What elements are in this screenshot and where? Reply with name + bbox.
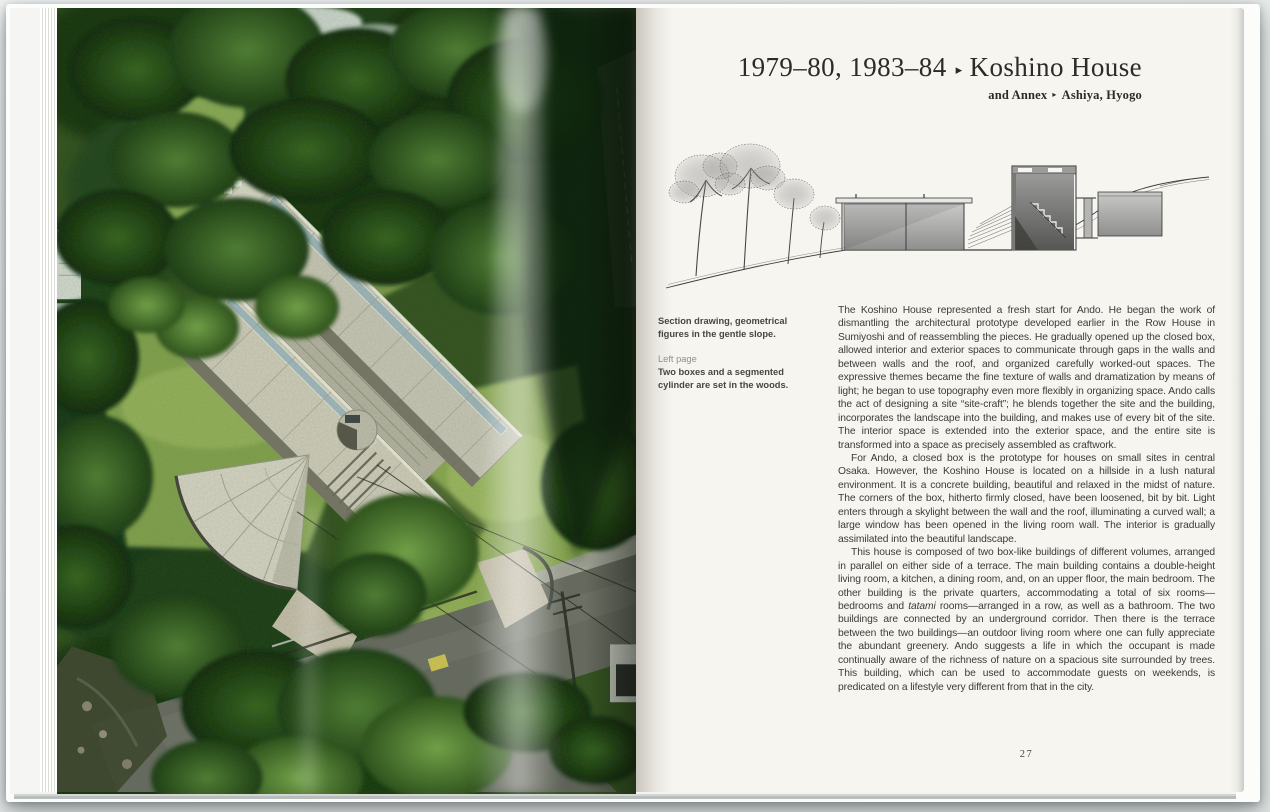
caption-line: Two boxes and a segmented xyxy=(658,366,794,379)
title-separator-icon: ▸ xyxy=(956,63,963,78)
chapter-heading: 1979–80, 1983–84▸Koshino House and Annex… xyxy=(738,52,1142,103)
caption-line: cylinder are set in the woods. xyxy=(658,379,794,392)
page-edge-curl xyxy=(1230,8,1244,792)
sketch-main-building xyxy=(1012,166,1076,250)
sketch-terrace-steps xyxy=(968,206,1012,248)
subtitle-location: Ashiya, Hyogo xyxy=(1062,88,1142,102)
body-text: The Koshino House represented a fresh st… xyxy=(838,304,1215,694)
page-subtitle: and Annex▸Ashiya, Hyogo xyxy=(738,88,1142,103)
aerial-photo-koshino-house xyxy=(57,8,636,794)
caption-block: Section drawing, geometricalfigures in t… xyxy=(658,315,794,392)
title-years: 1979–80, 1983–84 xyxy=(738,52,947,82)
paragraph: The Koshino House represented a fresh st… xyxy=(838,304,1215,452)
sketch-left-building xyxy=(836,194,972,250)
sketch-trees xyxy=(669,144,867,276)
sketch-annex xyxy=(1076,192,1162,238)
left-page xyxy=(57,8,636,794)
subtitle-separator-icon: ▸ xyxy=(1052,90,1056,99)
caption-line: figures in the gentle slope. xyxy=(658,328,794,341)
title-name: Koshino House xyxy=(970,52,1142,82)
right-page: 1979–80, 1983–84▸Koshino House and Annex… xyxy=(636,8,1244,792)
caption-left-page-label: Left page xyxy=(658,353,794,366)
caption-left-page: Two boxes and a segmentedcylinder are se… xyxy=(658,366,794,392)
caption-section-drawing: Section drawing, geometricalfigures in t… xyxy=(658,315,794,341)
paragraph: This house is composed of two box-like b… xyxy=(838,546,1215,694)
page-stack-left xyxy=(10,8,57,794)
book-photograph: 1979–80, 1983–84▸Koshino House and Annex… xyxy=(0,0,1270,812)
page-number: 27 xyxy=(838,749,1215,760)
gutter-shadow-right xyxy=(636,8,672,792)
subtitle-prefix: and Annex xyxy=(988,88,1047,102)
caption-line: Section drawing, geometrical xyxy=(658,315,794,328)
paragraph: For Ando, a closed box is the prototype … xyxy=(838,452,1215,546)
page-title: 1979–80, 1983–84▸Koshino House xyxy=(738,52,1142,83)
section-drawing xyxy=(660,136,1216,300)
